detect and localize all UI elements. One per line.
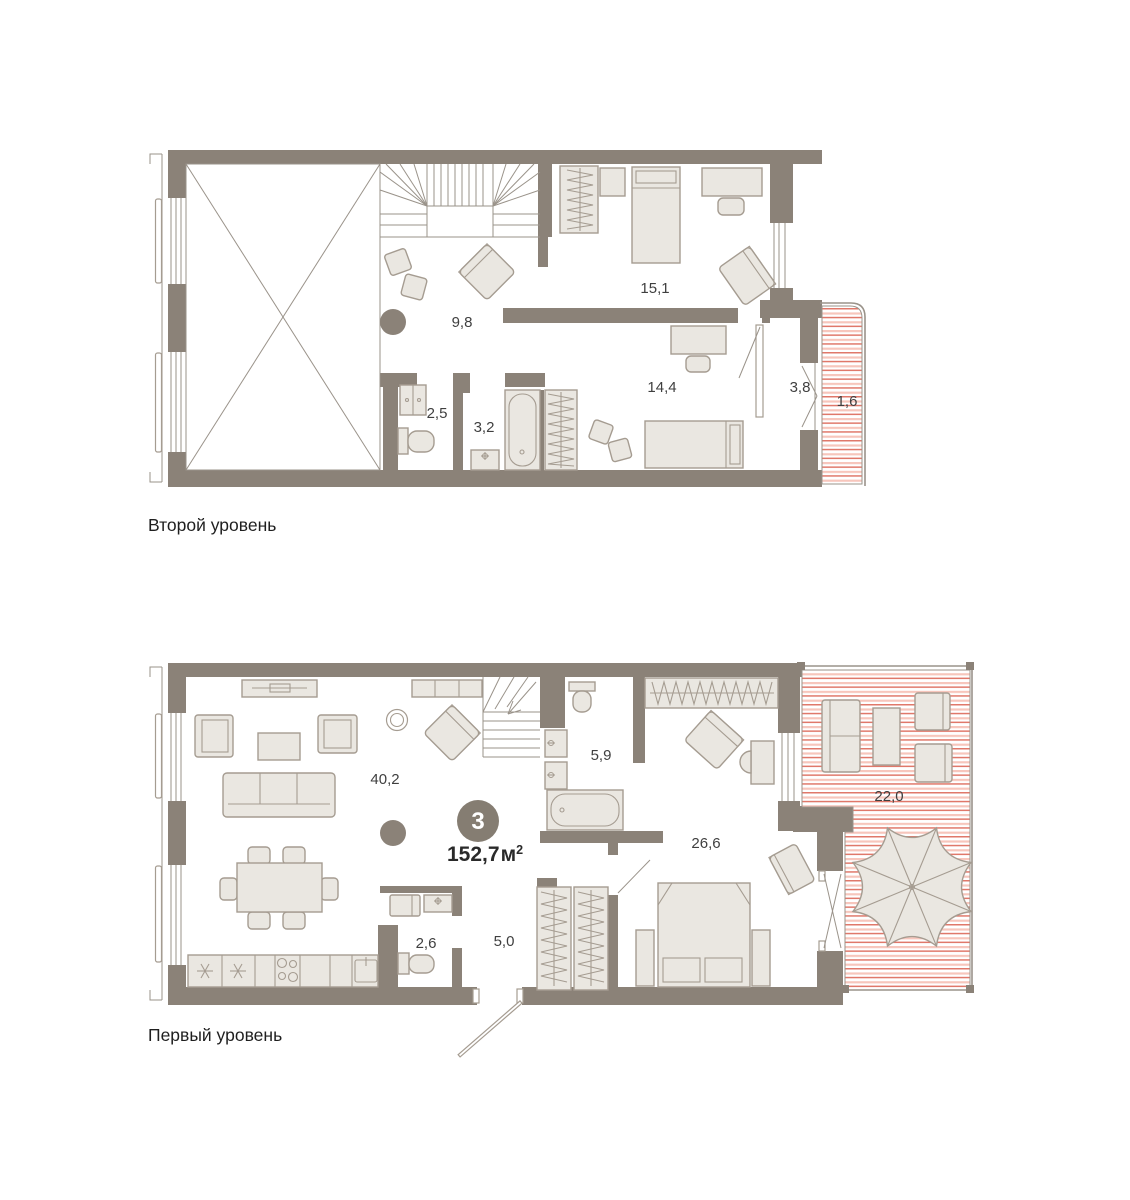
room-area-label-bedroom-lower: 14,4: [647, 379, 676, 396]
chair-icon: [740, 751, 751, 773]
room-area-label-master-bedroom: 26,6: [691, 835, 720, 852]
bed-icon: [632, 167, 680, 263]
door-swing-icon: [618, 860, 650, 893]
toilet-icon: [569, 682, 595, 712]
bed-icon: [658, 883, 750, 987]
facade-lines: [150, 154, 162, 482]
sideboard-icon: [412, 680, 482, 697]
bathtub-icon: [547, 790, 623, 830]
desk-icon: [671, 326, 726, 372]
dining-chair-icon: [248, 912, 270, 929]
wardrobe-icon: [645, 678, 778, 708]
armchair-icon: [424, 705, 481, 762]
lounge-furniture: [380, 244, 515, 335]
room-area-label-lounge: 9,8: [452, 314, 473, 331]
bench-icon: [752, 930, 770, 986]
desk-icon: [740, 741, 774, 784]
level-1-plan: 3 152,7м2 40,2 5,9 26,6 22,0 2,6 5,0: [150, 662, 974, 1057]
french-door-icon: [800, 363, 818, 430]
window-icon: [168, 713, 186, 801]
armchair-icon: [195, 715, 233, 757]
armchair-icon: [769, 843, 815, 894]
room-area-label-wc: 2,5: [427, 405, 448, 422]
sink-icon: [424, 895, 452, 912]
total-area-label: 152,7м2: [447, 843, 523, 866]
dining-chair-icon: [248, 847, 270, 864]
stairs-icon: [483, 677, 540, 757]
room-area-label-balcony: 1,6: [837, 393, 858, 410]
partition-panel: [756, 325, 763, 417]
window-icon: [168, 198, 186, 284]
direction-arrow-icon: [508, 682, 536, 714]
room-area-label-wardrobe-room: 3,8: [790, 379, 811, 396]
chair-icon: [686, 356, 710, 372]
window-icon: [168, 865, 186, 965]
planter-icon: [387, 710, 408, 731]
pouf-icon: [401, 274, 428, 301]
wardrobe-icon: [537, 887, 608, 990]
armchair-icon: [718, 246, 776, 305]
window-icon: [770, 223, 793, 288]
level-2-plan: 9,8 15,1 14,4 3,8 1,6 2,5 3,2: [150, 150, 865, 487]
french-door-icon: [819, 871, 841, 951]
room-area-label-bedroom-upper: 15,1: [640, 280, 669, 297]
dining-chair-icon: [321, 878, 338, 900]
toilet-icon: [398, 953, 434, 974]
dining-chair-icon: [283, 912, 305, 929]
cabinet-icon: [400, 385, 426, 415]
room-area-label-wc-laundry: 2,6: [416, 935, 437, 952]
armchair-icon: [318, 715, 357, 753]
side-table-icon: [380, 820, 406, 846]
pouf-icon: [588, 419, 614, 445]
dining-chair-icon: [220, 878, 237, 900]
wardrobe-icon: [545, 390, 577, 470]
apartment-badge: 3 152,7м2: [447, 800, 523, 866]
level-1-title: Первый уровень: [148, 1025, 282, 1045]
window-icon: [168, 352, 186, 452]
kitchen-counter-icon: [188, 955, 378, 987]
post-icon: [966, 985, 974, 993]
room-area-label-living-kitchen: 40,2: [370, 771, 399, 788]
desk-icon: [702, 168, 762, 215]
pouf-icon: [608, 438, 632, 462]
post-icon: [966, 662, 974, 670]
armchair-icon: [684, 710, 743, 769]
room-area-label-hallway: 5,0: [494, 933, 515, 950]
washer-icon: [390, 895, 420, 916]
room-area-label-bathroom: 3,2: [474, 419, 495, 436]
room-count: 3: [471, 808, 484, 835]
level-2-title: Второй уровень: [148, 515, 276, 535]
nightstand-icon: [600, 168, 625, 196]
outdoor-chair-icon: [915, 744, 952, 782]
window-icon: [778, 733, 800, 801]
outdoor-chair-icon: [915, 693, 950, 730]
floor-plan-page: 9,8 15,1 14,4 3,8 1,6 2,5 3,2 Второй уро…: [0, 0, 1130, 1200]
railing-icon: [156, 714, 162, 798]
pouf-icon: [384, 248, 412, 276]
void-room: [186, 164, 380, 470]
coffee-table-icon: [258, 733, 300, 760]
tv-console-icon: [242, 680, 317, 697]
side-table-icon: [380, 309, 406, 335]
floor-plan-canvas: 9,8 15,1 14,4 3,8 1,6 2,5 3,2 Второй уро…: [0, 0, 1130, 1200]
chair-icon: [718, 198, 744, 215]
room-area-label-terrace: 22,0: [874, 788, 903, 805]
armchair-icon: [459, 244, 516, 301]
sink-icon: [545, 730, 567, 757]
post-icon: [841, 985, 849, 993]
toilet-icon: [398, 428, 434, 454]
room-area-label-bathroom: 5,9: [591, 747, 612, 764]
sink-icon: [471, 450, 499, 470]
bed-icon: [645, 421, 743, 468]
railing-icon: [156, 866, 162, 962]
dining-chair-icon: [283, 847, 305, 864]
dining-table-icon: [220, 847, 338, 929]
post-icon: [797, 662, 805, 670]
railing-icon: [156, 353, 162, 452]
bedroom-lower-furniture: [588, 325, 763, 468]
outdoor-sofa-icon: [822, 700, 860, 772]
sink-icon: [545, 762, 567, 789]
outdoor-table-icon: [873, 708, 900, 765]
facade-lines: [150, 667, 162, 1000]
railing-icon: [156, 199, 162, 283]
sofa-icon: [223, 773, 335, 817]
bench-icon: [636, 930, 654, 986]
stairs-icon: [380, 164, 540, 237]
bathtub-icon: [505, 390, 540, 470]
wardrobe-icon: [560, 166, 598, 233]
bedroom-upper-furniture: [600, 167, 776, 306]
